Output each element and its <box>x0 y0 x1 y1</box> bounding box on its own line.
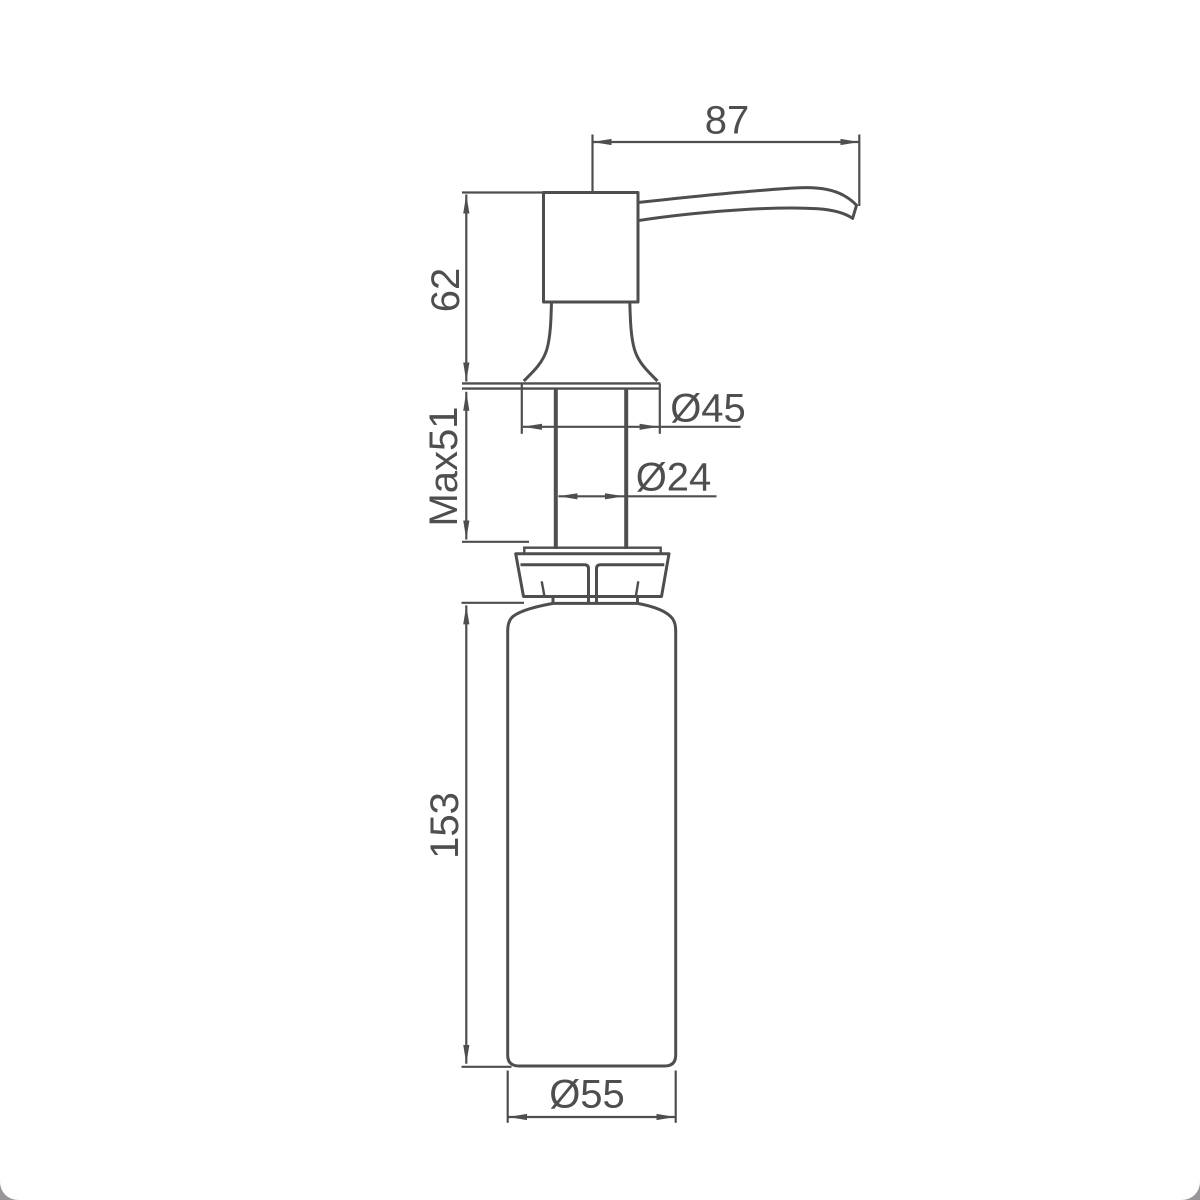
locking-nut-notch-left <box>542 581 545 596</box>
locking-nut-body <box>516 554 669 597</box>
dimension-label: Ø45 <box>670 387 746 431</box>
dim-head-height: 62 <box>424 193 544 382</box>
pump-bell-right-edge <box>630 302 658 381</box>
dimension-label: 87 <box>705 99 750 143</box>
dimension-label: Ø24 <box>636 456 712 500</box>
dim-spout-reach: 87 <box>593 99 860 207</box>
locking-nut-notch-right <box>636 581 639 596</box>
dimension-annotations: 87 62 Max51 Ø45 <box>422 99 859 1123</box>
dimension-label: Max51 <box>422 406 466 526</box>
dim-deck-thickness: Max51 <box>422 392 529 542</box>
page-corner-bottom-right <box>1182 1182 1200 1200</box>
dimension-label: 153 <box>423 792 467 859</box>
dim-shank-diameter: Ø24 <box>558 456 716 500</box>
bottle-body <box>508 603 676 1066</box>
dimension-label: 62 <box>424 268 468 313</box>
pump-bell-left-edge <box>524 302 552 381</box>
pump-spout <box>638 188 857 221</box>
dimension-label: Ø55 <box>549 1073 625 1117</box>
dispenser-outline <box>462 188 857 1066</box>
dim-bottle-diameter: Ø55 <box>508 1071 676 1123</box>
page-corner-bottom-left <box>0 1182 18 1200</box>
technical-drawing-page: 87 62 Max51 Ø45 <box>0 0 1200 1200</box>
pump-head-body <box>544 193 639 303</box>
dispenser-drawing-svg: 87 62 Max51 Ø45 <box>0 0 1200 1200</box>
